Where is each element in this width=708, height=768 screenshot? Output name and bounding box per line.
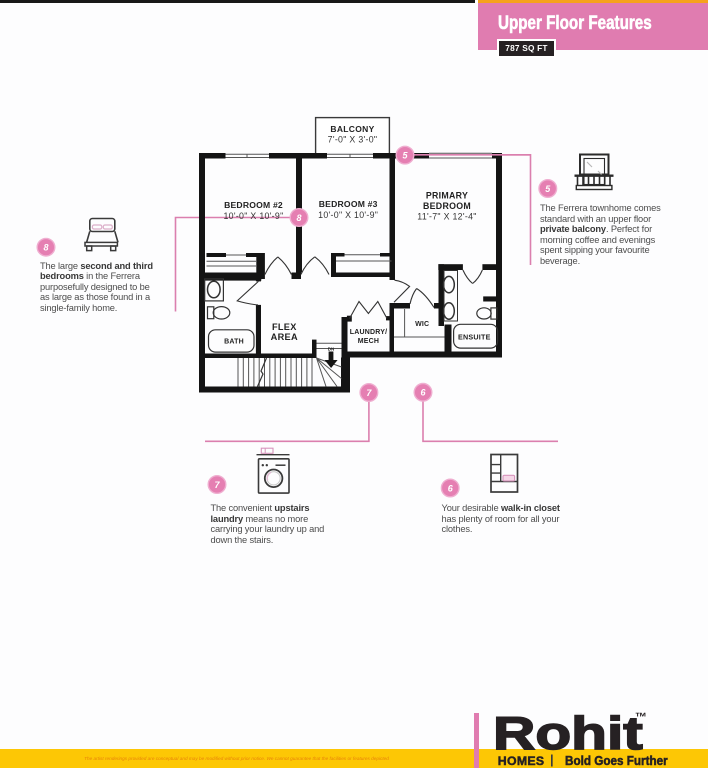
svg-text:10'-0" X 10'-9": 10'-0" X 10'-9"	[223, 211, 283, 221]
svg-text:8: 8	[43, 243, 48, 253]
svg-text:AREA: AREA	[271, 332, 298, 342]
svg-text:11'-7" X 12'-4": 11'-7" X 12'-4"	[417, 212, 476, 222]
svg-text:BEDROOM: BEDROOM	[423, 201, 471, 211]
svg-text:10'-0" X 10'-9": 10'-0" X 10'-9"	[318, 210, 378, 220]
svg-text:BEDROOM #3: BEDROOM #3	[319, 199, 378, 209]
svg-text:MECH: MECH	[358, 338, 379, 345]
svg-text:7'-0" X 3'-0": 7'-0" X 3'-0"	[328, 135, 378, 145]
svg-text:WIC: WIC	[415, 321, 429, 328]
svg-text:FLEX: FLEX	[272, 322, 297, 332]
svg-text:8: 8	[296, 213, 301, 223]
svg-text:BALCONY: BALCONY	[330, 124, 374, 134]
svg-text:PRIMARY: PRIMARY	[426, 191, 468, 201]
svg-text:BEDROOM #2: BEDROOM #2	[224, 200, 283, 210]
svg-text:BATH: BATH	[224, 339, 244, 346]
svg-text:ENSUITE: ENSUITE	[458, 333, 491, 342]
svg-text:LAUNDRY/: LAUNDRY/	[350, 329, 388, 336]
svg-text:DN: DN	[328, 347, 335, 352]
